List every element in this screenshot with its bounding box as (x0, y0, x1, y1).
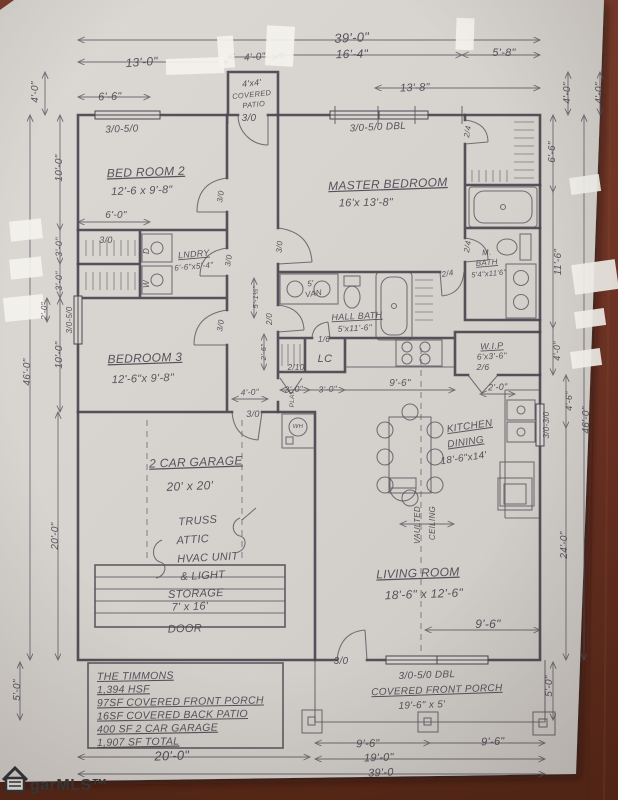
floor-plan-photo: 39'-0"13'-0"4'-0"16'-4"5'-8"13'-8"6'-6"4… (0, 0, 618, 800)
plan-canvas: 39'-0"13'-0"4'-0"16'-4"5'-8"13'-8"6'-6"4… (0, 0, 618, 800)
photo-vignette (0, 0, 618, 800)
